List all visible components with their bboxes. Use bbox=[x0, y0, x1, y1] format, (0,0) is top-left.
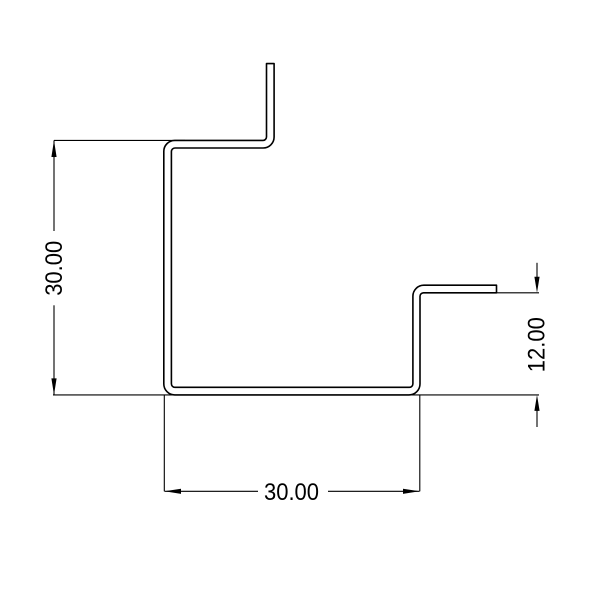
svg-text:30.00: 30.00 bbox=[41, 241, 68, 296]
svg-text:30.00: 30.00 bbox=[264, 479, 319, 506]
svg-text:12.00: 12.00 bbox=[524, 317, 551, 372]
